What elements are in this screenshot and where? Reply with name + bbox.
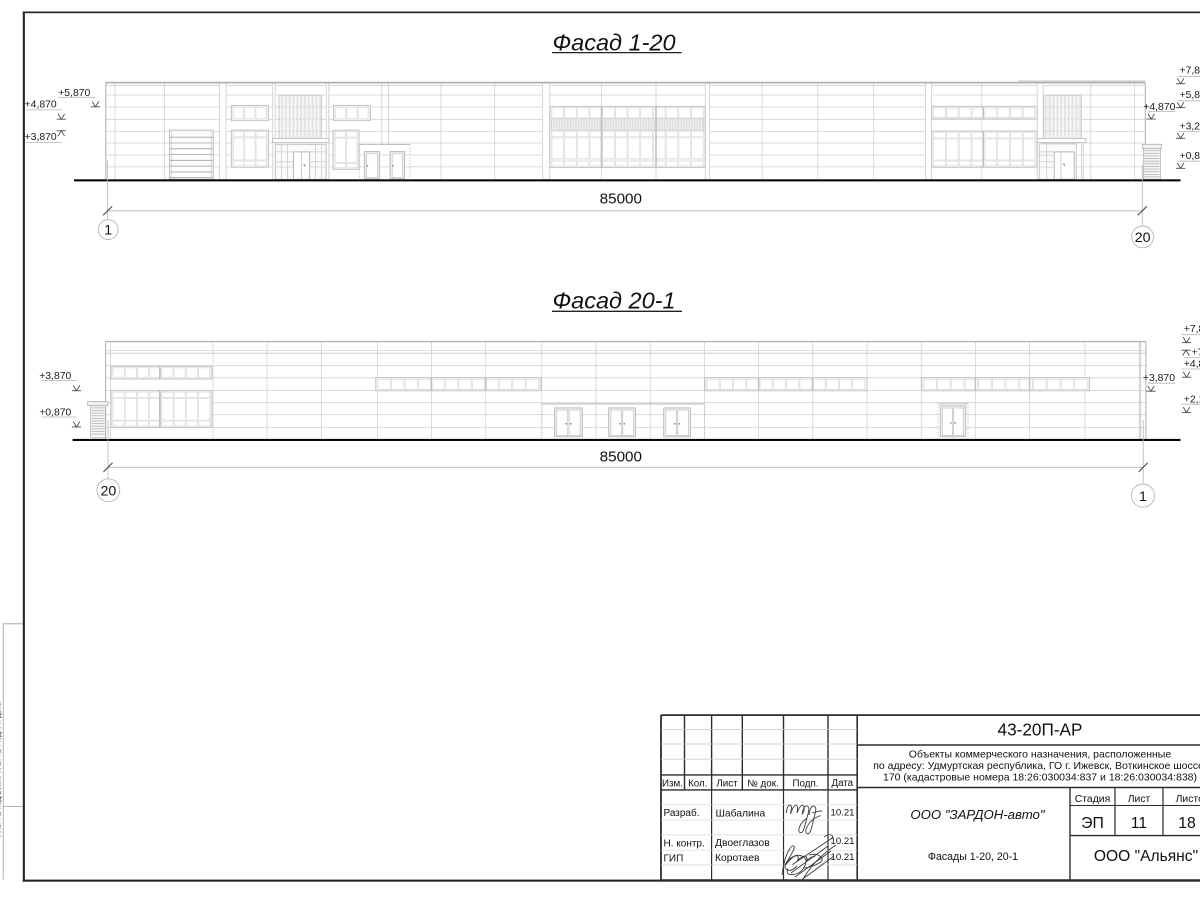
svg-text:1: 1 xyxy=(104,223,112,239)
svg-text:Инв. № подл.: Инв. № подл. xyxy=(0,791,3,838)
svg-text:Стадия: Стадия xyxy=(1075,794,1110,805)
svg-text:+0,870: +0,870 xyxy=(1180,151,1200,162)
svg-text:Подп. и дата: Подп. и дата xyxy=(0,701,3,746)
svg-text:+4,870: +4,870 xyxy=(25,99,57,110)
svg-text:+3,870: +3,870 xyxy=(25,132,57,143)
svg-text:Лист: Лист xyxy=(1128,794,1151,805)
svg-text:85000: 85000 xyxy=(600,448,642,465)
svg-text:Подп.: Подп. xyxy=(792,778,818,789)
svg-text:+3,270: +3,270 xyxy=(1180,122,1200,133)
svg-text:по адресу: Удмуртская республи: по адресу: Удмуртская республика, ГО г. … xyxy=(873,760,1200,772)
svg-text:Фасад 20-1: Фасад 20-1 xyxy=(552,287,675,313)
svg-text:10.21: 10.21 xyxy=(830,852,854,863)
svg-text:11: 11 xyxy=(1131,815,1148,832)
svg-text:ЭП: ЭП xyxy=(1081,815,1104,832)
svg-text:170 (кадастровые номера 18:26:: 170 (кадастровые номера 18:26:030034:837… xyxy=(883,772,1197,784)
svg-text:ООО "ЗАРДОН-авто": ООО "ЗАРДОН-авто" xyxy=(910,807,1045,822)
svg-text:+3,870: +3,870 xyxy=(1143,373,1175,384)
svg-text:Двоеглазов: Двоеглазов xyxy=(715,838,770,849)
svg-text:ГИП: ГИП xyxy=(664,853,684,864)
svg-text:10.21: 10.21 xyxy=(830,836,854,847)
svg-text:Листов: Листов xyxy=(1176,794,1200,805)
svg-text:ООО "Альянс": ООО "Альянс" xyxy=(1094,848,1198,865)
svg-text:+7,370: +7,370 xyxy=(1192,348,1200,359)
svg-text:+5,870: +5,870 xyxy=(1180,90,1200,101)
svg-text:20: 20 xyxy=(1135,230,1151,246)
svg-text:85000: 85000 xyxy=(600,191,642,208)
svg-text:Н. контр.: Н. контр. xyxy=(664,838,705,849)
svg-text:Шабалина: Шабалина xyxy=(716,808,766,820)
svg-text:Дата: Дата xyxy=(831,778,853,789)
svg-text:18: 18 xyxy=(1178,815,1196,832)
svg-text:+7,870: +7,870 xyxy=(1184,324,1200,335)
svg-text:Объекты коммерческого назначен: Объекты коммерческого назначения, распол… xyxy=(909,748,1172,760)
svg-text:1: 1 xyxy=(1139,489,1147,505)
svg-text:+7,870: +7,870 xyxy=(1180,66,1200,77)
svg-text:Кол.: Кол. xyxy=(688,778,707,789)
svg-text:10.21: 10.21 xyxy=(830,808,854,819)
svg-text:20: 20 xyxy=(101,484,117,500)
svg-text:Разраб.: Разраб. xyxy=(664,807,700,819)
svg-text:Изм.: Изм. xyxy=(662,778,683,789)
svg-text:№ док.: № док. xyxy=(747,778,778,789)
svg-text:Фасад 1-20: Фасад 1-20 xyxy=(552,29,675,55)
svg-text:+4,870: +4,870 xyxy=(1184,359,1200,370)
svg-text:Коротаев: Коротаев xyxy=(715,853,760,864)
svg-text:Лист: Лист xyxy=(716,778,738,789)
svg-text:Взам. инв. №: Взам. инв. № xyxy=(0,749,3,795)
svg-text:43-20П-АР: 43-20П-АР xyxy=(998,719,1083,739)
svg-text:Фасады 1-20, 20-1: Фасады 1-20, 20-1 xyxy=(928,851,1018,863)
